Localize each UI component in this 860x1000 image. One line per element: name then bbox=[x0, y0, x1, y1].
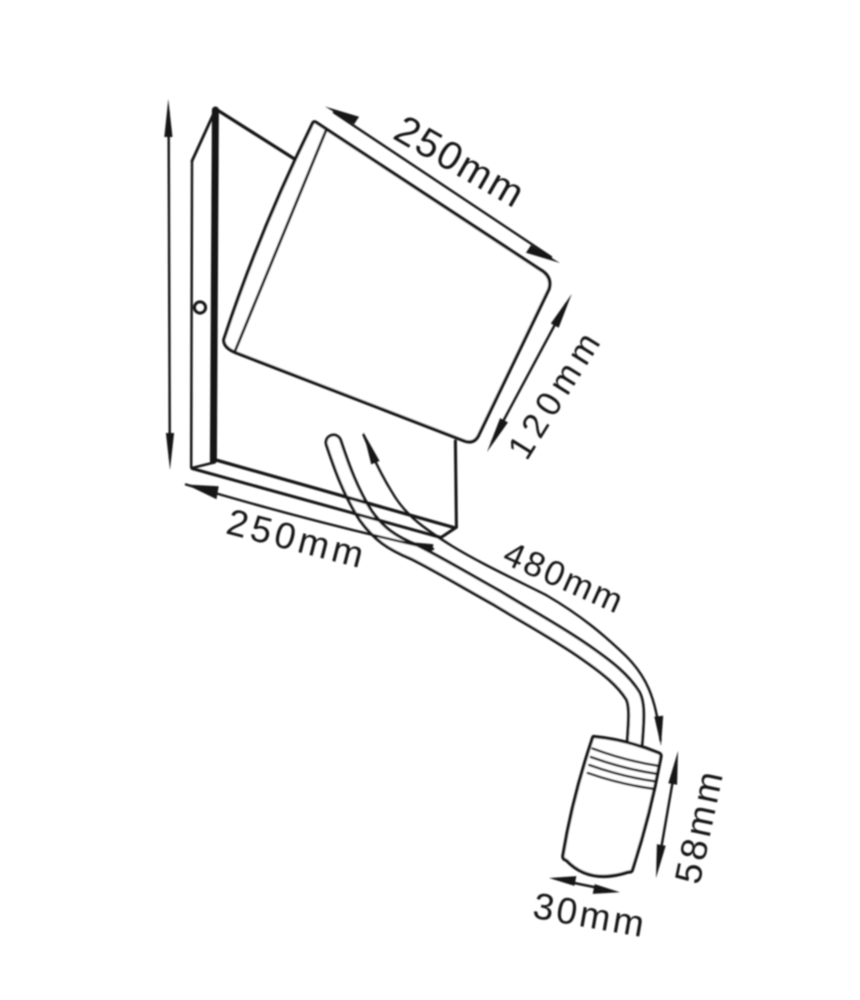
svg-text:30mm: 30mm bbox=[530, 885, 650, 945]
